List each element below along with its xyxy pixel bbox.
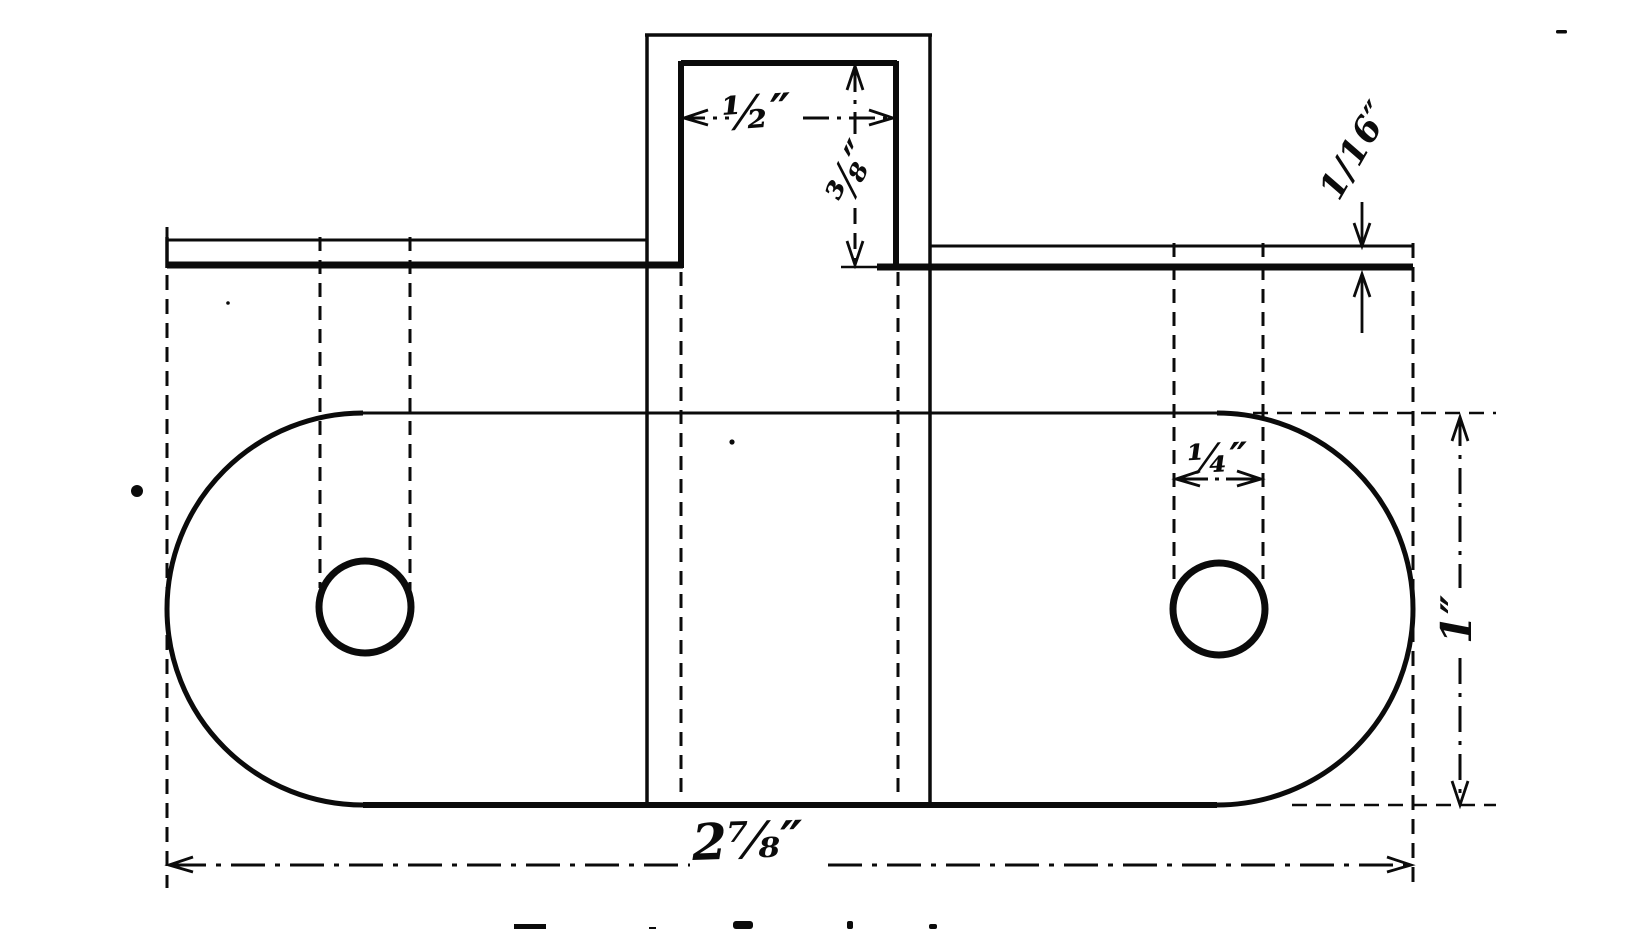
left-hole [319,561,411,653]
plan-view-holes [319,561,1265,655]
dim-label-plate-width: 1″ [1422,574,1492,664]
technical-drawing-page: ½″ ⅜″ 1/16″ ¼″ 1″ 2⅞″ [0,0,1651,929]
dim-label-plate-length: 2⅞″ [667,803,829,879]
side-view-plate [167,237,1413,268]
right-hole [1173,563,1265,655]
dim-label-hole-width: ¼″ [1170,426,1265,493]
caption-remnant [514,921,937,929]
dim-label-tab-width: ½″ [700,78,814,146]
